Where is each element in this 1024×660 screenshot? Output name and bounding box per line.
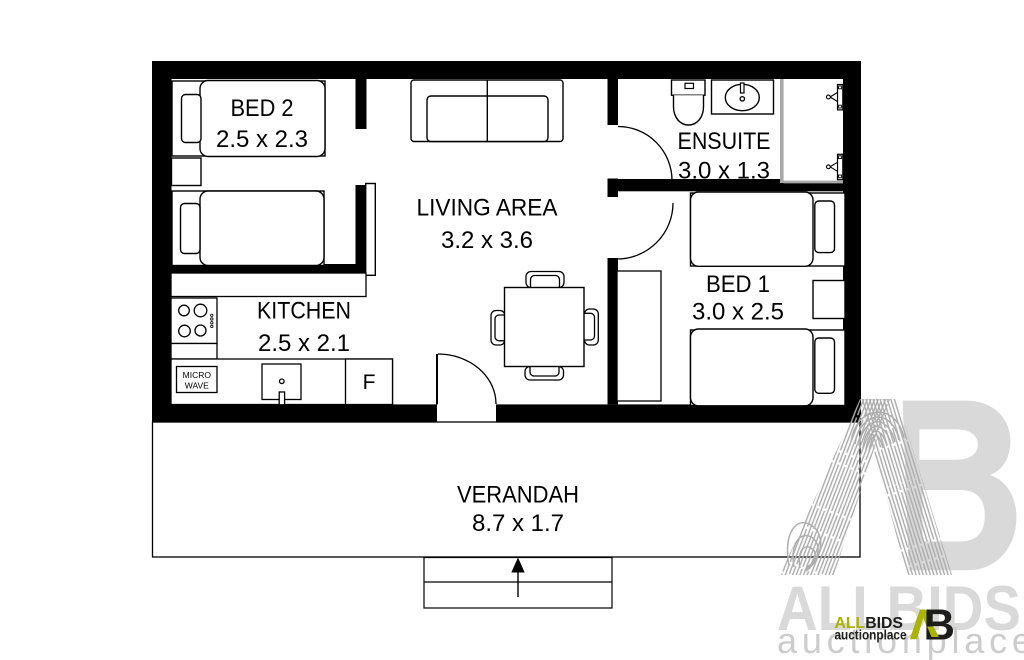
- svg-text:LIVING AREA: LIVING AREA: [417, 195, 558, 222]
- svg-text:3.0 x 1.3: 3.0 x 1.3: [678, 158, 770, 185]
- svg-text:MICRO: MICRO: [183, 370, 212, 380]
- svg-text:VERANDAH: VERANDAH: [457, 482, 579, 509]
- svg-text:BED 2: BED 2: [231, 95, 294, 122]
- svg-text:2.5 x 2.3: 2.5 x 2.3: [216, 126, 308, 153]
- svg-text:auctionplace: auctionplace: [835, 627, 907, 643]
- svg-text:3.0 x 2.5: 3.0 x 2.5: [692, 299, 784, 326]
- svg-text:3.2 x 3.6: 3.2 x 3.6: [441, 227, 533, 254]
- svg-text:2.5 x 2.1: 2.5 x 2.1: [258, 330, 350, 357]
- svg-text:ENSUITE: ENSUITE: [678, 128, 771, 155]
- svg-text:F: F: [363, 371, 376, 394]
- svg-text:WAVE: WAVE: [185, 381, 209, 391]
- svg-text:B: B: [924, 601, 955, 649]
- svg-text:KITCHEN: KITCHEN: [257, 298, 351, 325]
- svg-text:BED 1: BED 1: [706, 271, 770, 298]
- svg-text:8.7 x 1.7: 8.7 x 1.7: [472, 510, 564, 537]
